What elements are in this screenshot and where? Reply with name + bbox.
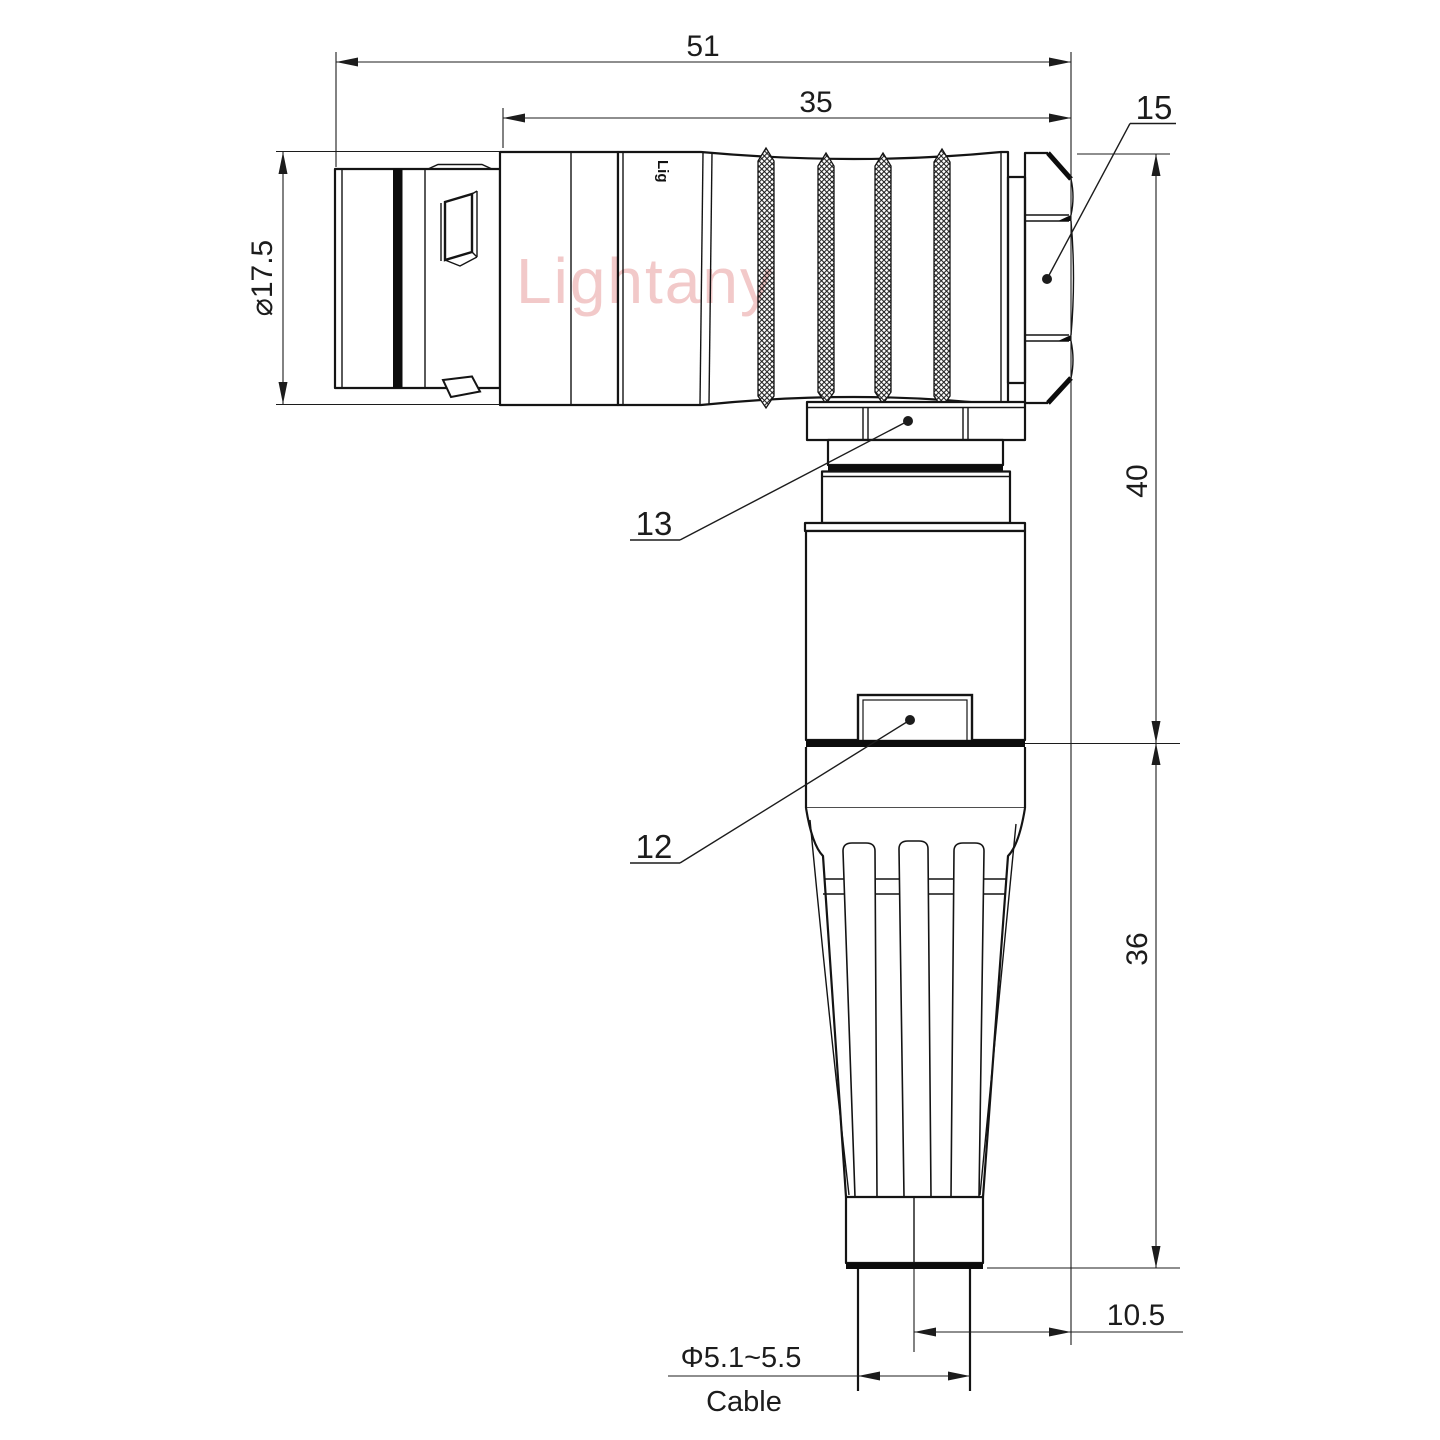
label-coupling-ring: 13 — [636, 505, 673, 542]
bottom-tab — [443, 377, 480, 398]
drawing-page: 51 35 ⌀17.5 40 36 10.5 — [0, 0, 1440, 1440]
dim-cable-diameter: Φ5.1~5.5 — [681, 1342, 802, 1374]
dimension-40: 40 — [1077, 154, 1170, 743]
leader-dot — [1042, 274, 1052, 284]
dim-overall-length: 51 — [686, 30, 719, 63]
plug-dark-band — [393, 169, 403, 388]
strain-relief-boot — [806, 808, 1025, 1197]
elbow-body — [805, 402, 1025, 823]
dim-rear-length: 35 — [799, 86, 832, 119]
leader-dot — [903, 416, 913, 426]
label-latch: 12 — [636, 828, 673, 865]
boot-rib — [951, 843, 984, 1197]
dim-boot-height: 36 — [1121, 932, 1154, 965]
hex-nut — [1008, 153, 1074, 403]
dim-elbow-height: 40 — [1121, 464, 1154, 497]
dimension-cable-diameter: Φ5.1~5.5 Cable — [668, 1342, 970, 1418]
connector-technical-drawing: 51 35 ⌀17.5 40 36 10.5 — [0, 0, 1440, 1440]
dimension-10-5: 10.5 — [914, 1299, 1183, 1337]
latch-band — [806, 740, 1025, 747]
watermark: Lightany — [516, 245, 774, 317]
shell-engraving: Lig — [654, 160, 671, 183]
boot-rib — [899, 841, 931, 1197]
cable-label: Cable — [706, 1386, 782, 1418]
dimension-35: 35 — [503, 86, 1071, 148]
nut-neck — [1008, 177, 1025, 383]
latch-window — [858, 695, 972, 741]
dim-shell-diameter: ⌀17.5 — [246, 240, 279, 316]
leader-dot — [905, 715, 915, 725]
label-hex-nut: 15 — [1136, 89, 1173, 126]
flange — [805, 523, 1025, 531]
plug-front-shell — [335, 165, 500, 398]
cable-ferrule — [846, 1197, 983, 1269]
dim-cable-offset: 10.5 — [1107, 1299, 1165, 1332]
